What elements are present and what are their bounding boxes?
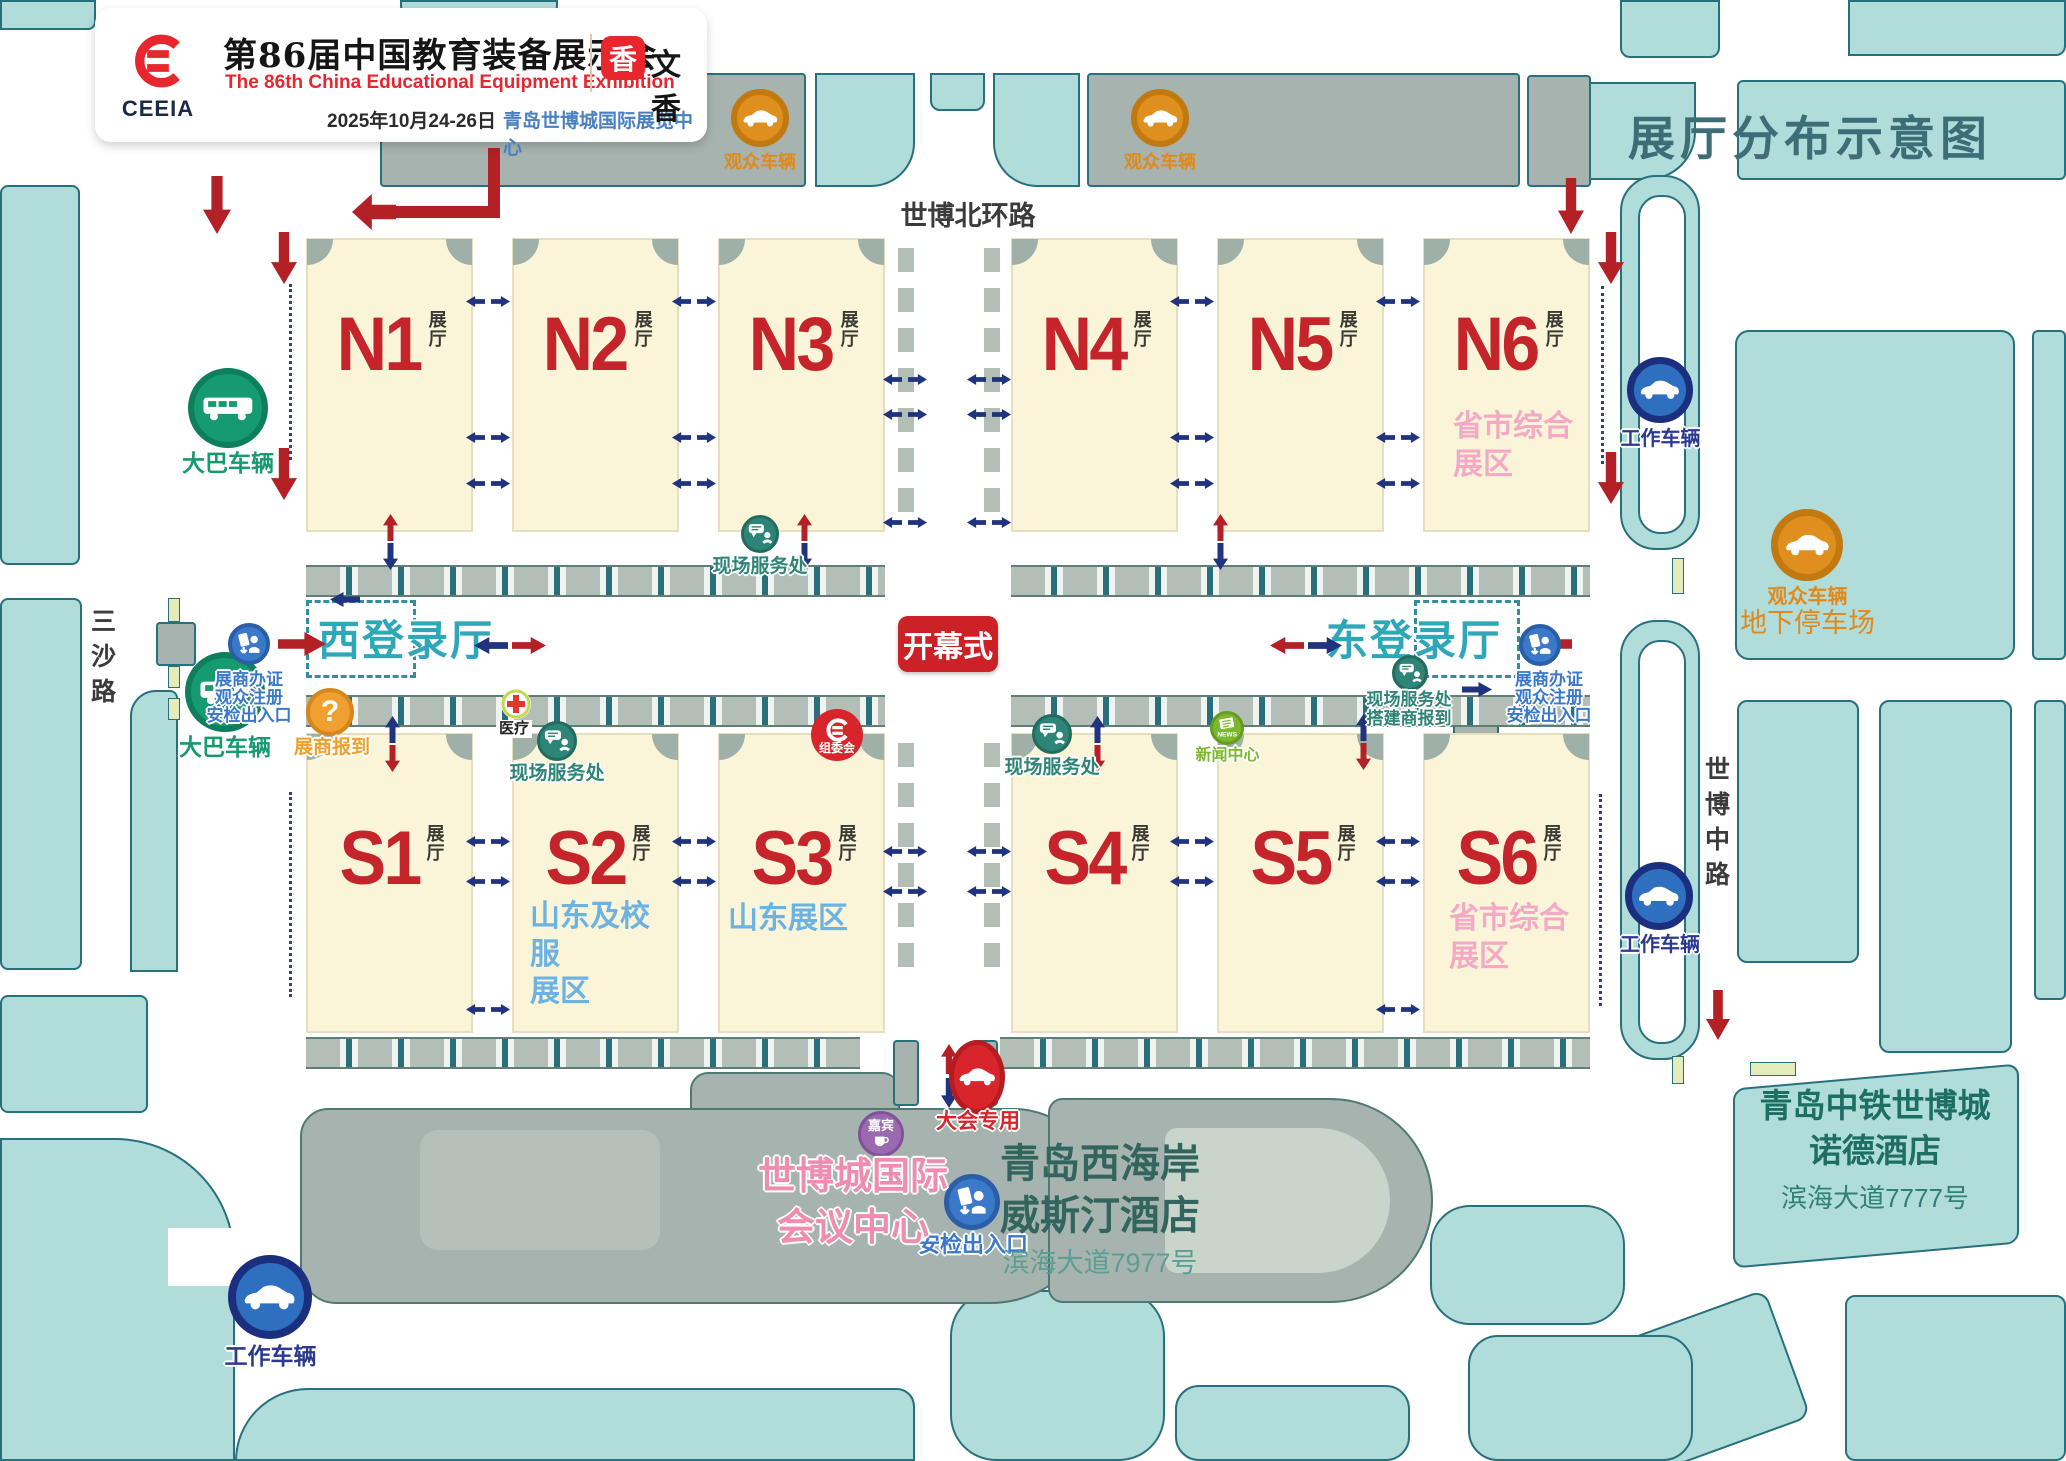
city-block bbox=[1737, 700, 1859, 963]
flow-arrow bbox=[512, 637, 546, 654]
green-area bbox=[1430, 1205, 1625, 1325]
flow-arrows bbox=[883, 374, 927, 385]
hall-s6[interactable]: S6展厅 省市综合 展区 bbox=[1423, 733, 1590, 1033]
flow-arrows bbox=[1170, 836, 1214, 847]
gate-building bbox=[156, 622, 196, 666]
hall-n1-label: N1 bbox=[337, 310, 421, 380]
city-block bbox=[930, 73, 985, 111]
dotted-line bbox=[1599, 794, 1602, 1006]
hall-suffix: 展厅 bbox=[1133, 310, 1151, 348]
hall-n5[interactable]: N5展厅 bbox=[1217, 238, 1384, 532]
visitor-car-icon[interactable] bbox=[1771, 509, 1843, 581]
hall-n1[interactable]: N1展厅 bbox=[306, 238, 473, 532]
gate-stub bbox=[168, 698, 180, 720]
bus-label: 大巴车辆 bbox=[145, 734, 305, 761]
hall-n6-label: N6 bbox=[1454, 310, 1538, 380]
flow-arrows bbox=[1376, 296, 1420, 307]
hall-suffix: 展厅 bbox=[634, 310, 652, 348]
exhibition-date: 2025年10月24-26日 bbox=[327, 106, 496, 133]
hall-suffix: 展厅 bbox=[425, 824, 443, 862]
city-block bbox=[0, 185, 80, 565]
map-title: 展厅分布示意图 bbox=[1600, 100, 2020, 169]
event-car-icon[interactable] bbox=[949, 1040, 1005, 1114]
city-block bbox=[2034, 700, 2066, 1000]
hall-s3[interactable]: S3展厅 山东展区 bbox=[718, 733, 885, 1033]
hall-n3[interactable]: N3展厅 bbox=[718, 238, 885, 532]
hall-s2-zone: 山东及校服 展区 bbox=[530, 898, 677, 1011]
city-block bbox=[2032, 330, 2066, 660]
flow-arrows bbox=[883, 409, 927, 420]
down-arrow bbox=[203, 176, 231, 234]
green-area bbox=[950, 1290, 1165, 1461]
parking-lot bbox=[1527, 75, 1591, 187]
hall-s3-label: S3 bbox=[751, 824, 831, 894]
visitor-car-label: 观众车辆 bbox=[700, 152, 820, 173]
nord-hotel-label: 青岛中铁世博城 诺德酒店 bbox=[1725, 1084, 2025, 1173]
news-label: 新闻中心 bbox=[1180, 747, 1275, 766]
flow-arrows bbox=[672, 432, 716, 443]
organizer-label: 组委会 bbox=[819, 742, 855, 754]
service-label: 现场服务处 bbox=[493, 763, 621, 785]
flow-arrows bbox=[1376, 432, 1420, 443]
hall-n6[interactable]: N6展厅 省市综合 展区 bbox=[1423, 238, 1590, 532]
dotted-line bbox=[289, 792, 292, 997]
hall-s5[interactable]: S5展厅 bbox=[1217, 733, 1384, 1033]
flow-arrows bbox=[967, 374, 1011, 385]
flow-arrows bbox=[466, 478, 510, 489]
city-block bbox=[0, 995, 148, 1113]
divider bbox=[590, 34, 592, 92]
wenxiang-logo-text: 文香 bbox=[651, 40, 707, 128]
flow-arrows bbox=[883, 846, 927, 857]
work-car-icon[interactable] bbox=[228, 1255, 312, 1339]
conference-center-label: 世博城国际 会议中心 bbox=[748, 1152, 958, 1255]
hall-n4[interactable]: N4展厅 bbox=[1011, 238, 1178, 532]
visitor-car-icon[interactable] bbox=[1131, 89, 1189, 147]
flow-arrows bbox=[672, 836, 716, 847]
corridor bbox=[1011, 565, 1590, 597]
opening-ceremony-badge[interactable]: 开幕式 bbox=[898, 616, 998, 672]
down-arrow bbox=[1706, 990, 1730, 1040]
city-block bbox=[1879, 700, 2012, 1053]
work-car-label: 工作车辆 bbox=[1596, 934, 1724, 958]
flow-arrows bbox=[1376, 478, 1420, 489]
gate-stub bbox=[1672, 1056, 1684, 1084]
green-area bbox=[1175, 1385, 1410, 1461]
city-block bbox=[0, 0, 96, 30]
hall-n2-label: N2 bbox=[543, 310, 627, 380]
news-en-label: NEWS bbox=[1217, 732, 1237, 739]
flow-arrows bbox=[1376, 836, 1420, 847]
green-area bbox=[1468, 1335, 1693, 1461]
hall-suffix: 展厅 bbox=[1339, 310, 1357, 348]
service-label: 现场服务处 bbox=[988, 757, 1116, 779]
badge-label: 展商办证 观众注册 安检出入口 bbox=[196, 671, 302, 725]
flow-arrows bbox=[967, 517, 1011, 528]
hall-suffix: 展厅 bbox=[631, 824, 649, 862]
checkin-icon[interactable]: ? bbox=[306, 688, 354, 736]
hall-s4-label: S4 bbox=[1044, 824, 1124, 894]
service-icon[interactable] bbox=[741, 515, 779, 553]
question-glyph: ? bbox=[321, 697, 339, 727]
flow-arrows bbox=[466, 1004, 510, 1015]
work-car-icon[interactable] bbox=[1627, 357, 1693, 423]
hall-n3-label: N3 bbox=[749, 310, 833, 380]
city-block bbox=[1845, 1295, 2066, 1461]
hall-suffix: 展厅 bbox=[428, 310, 446, 348]
flow-arrows bbox=[883, 886, 927, 897]
hall-s1[interactable]: S1展厅 bbox=[306, 733, 473, 1033]
hall-n4-label: N4 bbox=[1042, 310, 1126, 380]
corridor bbox=[306, 1037, 860, 1069]
city-block bbox=[130, 690, 178, 972]
service-label: 现场服务处 bbox=[696, 556, 824, 578]
down-arrow bbox=[271, 232, 297, 284]
exhibition-map: 世博北环路 三沙路 世博中路 N1展厅 N2展厅 N3展厅 N4展厅 N5展厅 … bbox=[0, 0, 2066, 1461]
opening-ceremony-label: 开幕式 bbox=[903, 622, 993, 666]
west-hall-label: 西登录厅 bbox=[318, 616, 494, 666]
road-label-west: 三沙路 bbox=[86, 608, 116, 713]
entry-arrow bbox=[392, 206, 500, 218]
underground-parking-label: 地下停车场 bbox=[1725, 608, 1890, 640]
news-icon[interactable]: NEWS bbox=[1210, 711, 1244, 745]
service-icon[interactable] bbox=[1392, 655, 1428, 691]
visitor-car-icon[interactable] bbox=[731, 89, 789, 147]
hall-suffix: 展厅 bbox=[1336, 824, 1354, 862]
hall-suffix: 展厅 bbox=[840, 310, 858, 348]
badge-icon[interactable] bbox=[228, 623, 270, 665]
work-car-label: 工作车辆 bbox=[1598, 428, 1723, 452]
hall-s6-zone: 省市综合 展区 bbox=[1449, 900, 1569, 975]
header-card: CEEIA 第86届中国教育装备展示会 The 86th China Educa… bbox=[95, 8, 707, 142]
flow-arrow bbox=[1270, 637, 1304, 654]
entry-arrow-head bbox=[352, 194, 396, 230]
medical-icon[interactable] bbox=[501, 689, 531, 719]
service-icon[interactable] bbox=[537, 721, 577, 761]
green-area bbox=[235, 1388, 915, 1461]
checkin-label: 展商报到 bbox=[293, 737, 371, 759]
event-car-label: 大会专用 bbox=[928, 1110, 1028, 1135]
flow-arrows bbox=[466, 432, 510, 443]
badge-label: 展商办证 观众注册 安检出入口 bbox=[1496, 671, 1602, 725]
entry-arrow bbox=[488, 148, 500, 206]
flow-arrows bbox=[967, 409, 1011, 420]
bus-icon[interactable] bbox=[188, 368, 268, 448]
flow-arrows bbox=[1376, 1004, 1420, 1015]
flow-arrows bbox=[466, 296, 510, 307]
road-label-east: 世博中路 bbox=[1700, 756, 1730, 896]
hall-n6-zone: 省市综合 展区 bbox=[1453, 408, 1573, 483]
visitor-car-label: 观众车辆 bbox=[1745, 586, 1870, 610]
loop-road-inner bbox=[1638, 640, 1686, 1044]
hall-suffix: 展厅 bbox=[1545, 310, 1563, 348]
city-block bbox=[1620, 0, 1720, 58]
booth-column bbox=[898, 743, 914, 983]
city-block bbox=[1848, 0, 2066, 56]
ceeia-logo-icon bbox=[127, 30, 189, 92]
hall-n2[interactable]: N2展厅 bbox=[512, 238, 679, 532]
flow-arrows bbox=[1376, 876, 1420, 887]
work-car-icon[interactable] bbox=[1625, 862, 1693, 930]
badge-icon[interactable] bbox=[1519, 624, 1561, 666]
hall-suffix: 展厅 bbox=[1542, 824, 1560, 862]
service-icon[interactable] bbox=[1032, 714, 1072, 754]
flow-arrows bbox=[1170, 876, 1214, 887]
hall-s2-label: S2 bbox=[545, 824, 625, 894]
flow-arrows bbox=[672, 478, 716, 489]
flow-arrows bbox=[967, 846, 1011, 857]
gate-stub bbox=[168, 598, 180, 622]
guest-icon[interactable]: 嘉宾 bbox=[858, 1111, 904, 1157]
flow-arrows bbox=[1170, 296, 1214, 307]
westin-hotel-label: 青岛西海岸 威斯汀酒店 bbox=[960, 1138, 1240, 1242]
city-block bbox=[0, 1138, 235, 1461]
nord-hotel-address: 滨海大道7777号 bbox=[1740, 1183, 2010, 1214]
gate-stub bbox=[168, 666, 180, 688]
flow-arrows bbox=[466, 876, 510, 887]
wenxiang-glyph: 香 bbox=[609, 38, 637, 78]
road-label-north: 世博北环路 bbox=[868, 201, 1068, 233]
gate-stub bbox=[1672, 558, 1684, 594]
dotted-line bbox=[289, 284, 292, 460]
service-builder-label: 现场服务处 搭建商报到 bbox=[1338, 691, 1480, 728]
ceeia-logo-text: CEEIA bbox=[105, 96, 211, 122]
bus-label: 大巴车辆 bbox=[148, 450, 308, 477]
hall-s5-label: S5 bbox=[1250, 824, 1330, 894]
guest-label: 嘉宾 bbox=[868, 1119, 894, 1133]
city-block bbox=[815, 73, 915, 187]
city-block bbox=[0, 598, 82, 970]
hall-s3-zone: 山东展区 bbox=[728, 900, 848, 938]
gate-stub bbox=[1750, 1062, 1796, 1076]
flow-arrows bbox=[883, 517, 927, 528]
flow-arrows bbox=[672, 296, 716, 307]
flow-arrows bbox=[466, 836, 510, 847]
corridor bbox=[1000, 1037, 1590, 1069]
hall-s6-label: S6 bbox=[1456, 824, 1536, 894]
wenxiang-logo-icon: 香 bbox=[601, 36, 645, 80]
flow-arrows bbox=[672, 876, 716, 887]
hall-suffix: 展厅 bbox=[837, 824, 855, 862]
conference-inner bbox=[420, 1130, 660, 1250]
flow-arrows bbox=[967, 886, 1011, 897]
hall-s1-label: S1 bbox=[339, 824, 419, 894]
westin-hotel-address: 滨海大道7977号 bbox=[965, 1248, 1235, 1280]
flow-arrows bbox=[1170, 478, 1214, 489]
hall-n5-label: N5 bbox=[1248, 310, 1332, 380]
medical-label: 医疗 bbox=[496, 720, 532, 738]
hall-suffix: 展厅 bbox=[1130, 824, 1148, 862]
south-gate bbox=[893, 1040, 919, 1106]
city-block bbox=[993, 73, 1080, 187]
organizer-icon[interactable]: 组委会 bbox=[811, 709, 863, 761]
flow-arrows bbox=[1170, 432, 1214, 443]
visitor-car-label: 观众车辆 bbox=[1100, 152, 1220, 173]
work-car-label: 工作车辆 bbox=[188, 1343, 353, 1370]
